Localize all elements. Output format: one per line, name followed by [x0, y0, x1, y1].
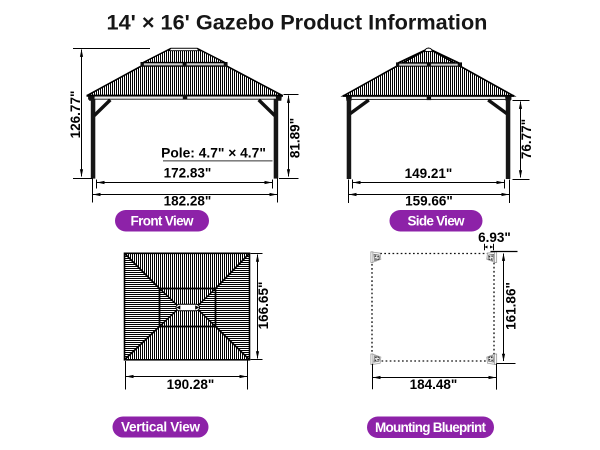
svg-text:6.93": 6.93" [478, 230, 511, 245]
svg-text:172.83": 172.83" [164, 166, 212, 181]
svg-text:Vertical View: Vertical View [121, 420, 200, 435]
svg-text:182.28": 182.28" [164, 194, 212, 209]
svg-text:Side View: Side View [408, 214, 465, 229]
svg-text:166.65": 166.65" [256, 282, 271, 330]
svg-text:149.21": 149.21" [405, 166, 453, 181]
svg-text:Front View: Front View [131, 214, 194, 229]
svg-text:81.89": 81.89" [287, 118, 302, 158]
svg-text:161.86": 161.86" [504, 282, 519, 330]
svg-text:184.48": 184.48" [410, 377, 458, 392]
svg-text:126.77": 126.77" [68, 91, 83, 139]
svg-text:76.77": 76.77" [519, 119, 534, 159]
svg-text:Mounting Blueprint: Mounting Blueprint [375, 420, 487, 435]
svg-text:14' × 16' Gazebo Product Infor: 14' × 16' Gazebo Product Information [107, 10, 488, 35]
svg-text:159.66": 159.66" [405, 194, 453, 209]
svg-text:190.28": 190.28" [167, 377, 215, 392]
svg-text:Pole: 4.7" × 4.7": Pole: 4.7" × 4.7" [161, 146, 266, 161]
